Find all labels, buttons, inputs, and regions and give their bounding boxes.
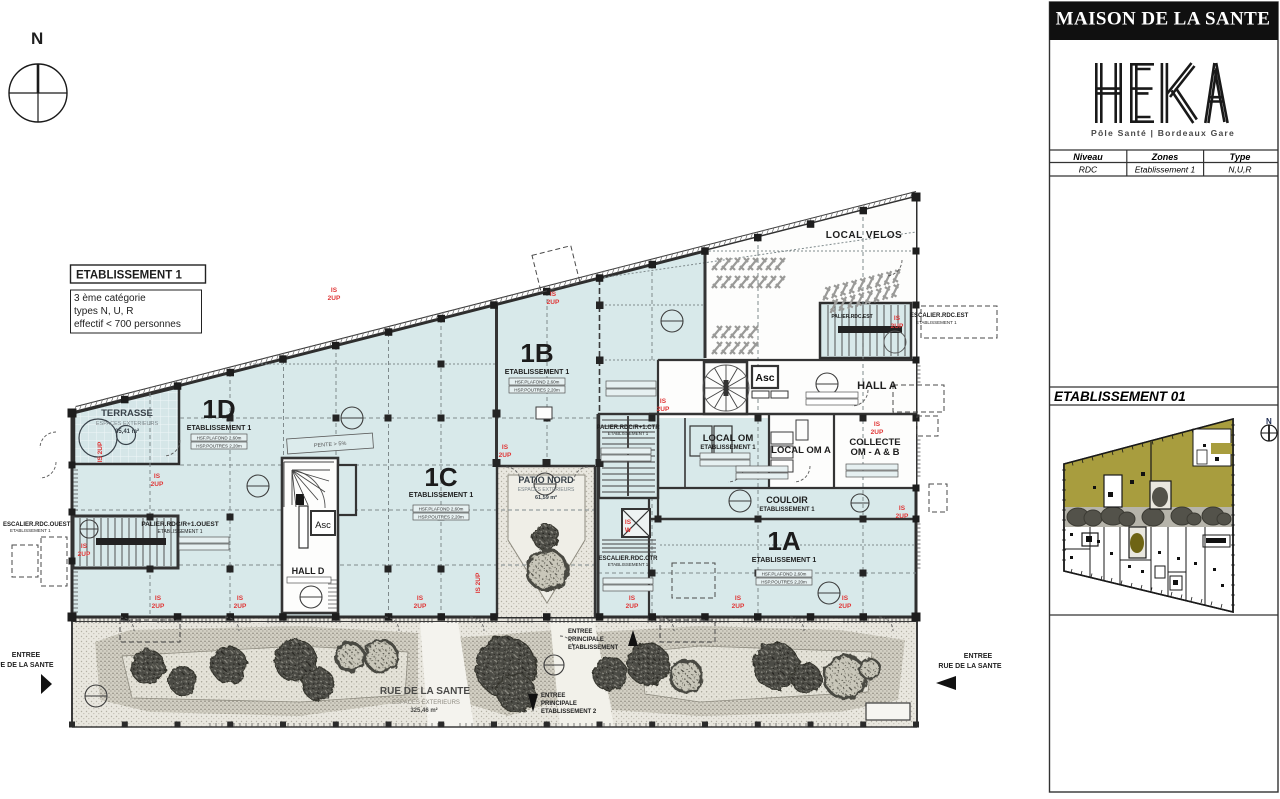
svg-text:ESPACES EXTERIEURS: ESPACES EXTERIEURS	[518, 487, 575, 493]
svg-text:OM - A & B: OM - A & B	[851, 447, 900, 458]
svg-text:COULOIR: COULOIR	[766, 495, 808, 505]
svg-text:MAISON DE LA SANTE: MAISON DE LA SANTE	[1056, 9, 1271, 30]
svg-text:Type: Type	[1230, 152, 1251, 162]
svg-text:61,59 m²: 61,59 m²	[535, 494, 557, 501]
svg-text:TERRASSE: TERRASSE	[101, 408, 153, 419]
svg-text:Asc: Asc	[755, 372, 774, 384]
svg-text:RDC: RDC	[1079, 165, 1098, 175]
svg-text:Pôle Santé | Bordeaux Gare: Pôle Santé | Bordeaux Gare	[1091, 128, 1235, 138]
svg-text:ETABLISSEMENT 1: ETABLISSEMENT 1	[10, 528, 51, 533]
svg-text:2UP: 2UP	[328, 295, 341, 302]
svg-text:HSP.POUTRES 2,20m: HSP.POUTRES 2,20m	[761, 580, 807, 585]
svg-text:types N, U, R: types N, U, R	[74, 306, 133, 317]
svg-text:IS: IS	[735, 595, 742, 602]
svg-text:IS 2UP: IS 2UP	[475, 572, 482, 593]
svg-text:2UP: 2UP	[626, 603, 639, 610]
svg-text:Asc: Asc	[315, 520, 331, 531]
svg-text:HALL A: HALL A	[857, 380, 897, 392]
svg-text:2UP: 2UP	[151, 481, 164, 488]
svg-text:2UP: 2UP	[547, 299, 560, 306]
svg-text:2UP: 2UP	[839, 603, 852, 610]
svg-text:1A: 1A	[767, 526, 800, 556]
svg-text:ETABLISSEMENT 1: ETABLISSEMENT 1	[76, 270, 182, 282]
svg-text:RUE DE LA SANTE: RUE DE LA SANTE	[938, 663, 1001, 670]
svg-text:IS: IS	[237, 595, 244, 602]
svg-text:IS: IS	[81, 543, 88, 550]
svg-text:ETABLISSEMENT 1: ETABLISSEMENT 1	[916, 320, 957, 325]
svg-text:RUE DE LA SANTE: RUE DE LA SANTE	[0, 662, 54, 669]
svg-text:HSP.POUTRES 2,20m: HSP.POUTRES 2,20m	[514, 388, 560, 393]
svg-text:IS: IS	[331, 287, 338, 294]
svg-text:IS: IS	[874, 421, 881, 428]
svg-text:N: N	[31, 29, 43, 48]
svg-text:PATIO NORD: PATIO NORD	[518, 475, 574, 485]
svg-text:ETABLISSEMENT 1: ETABLISSEMENT 1	[157, 529, 202, 535]
svg-text:ETABLISSEMENT 1: ETABLISSEMENT 1	[759, 507, 815, 513]
svg-text:ESCALIER.RDC.EST: ESCALIER.RDC.EST	[910, 313, 969, 319]
svg-text:HSF.PLAFOND 2,60m: HSF.PLAFOND 2,60m	[762, 572, 807, 577]
svg-text:ETABLISSEMENT 1: ETABLISSEMENT 1	[187, 425, 252, 432]
svg-text:Niveau: Niveau	[1073, 152, 1103, 162]
svg-text:HSF.PLAFOND 2,60m: HSF.PLAFOND 2,60m	[515, 380, 560, 385]
svg-text:2UP: 2UP	[732, 603, 745, 610]
svg-text:ENTREE: ENTREE	[964, 653, 993, 660]
svg-text:35,41 m²: 35,41 m²	[115, 428, 139, 435]
svg-text:LOCAL OM: LOCAL OM	[703, 433, 754, 444]
svg-text:2UP: 2UP	[78, 551, 91, 558]
svg-text:LOCAL VELOS: LOCAL VELOS	[826, 230, 902, 241]
svg-text:IS: IS	[660, 398, 667, 405]
svg-text:W: W	[625, 527, 632, 534]
svg-text:IS: IS	[154, 473, 161, 480]
svg-text:ETABLISSEMENT 1: ETABLISSEMENT 1	[409, 492, 474, 499]
svg-text:HSP.POUTRES 2,20m: HSP.POUTRES 2,20m	[196, 444, 242, 449]
svg-text:effectif < 700 personnes: effectif < 700 personnes	[74, 319, 181, 330]
svg-text:IS 2UP: IS 2UP	[97, 441, 104, 462]
svg-text:Etablissement 1: Etablissement 1	[1135, 165, 1196, 175]
svg-text:2UP: 2UP	[414, 603, 427, 610]
svg-text:IS: IS	[842, 595, 849, 602]
svg-text:ETABLISSEMENT 1: ETABLISSEMENT 1	[505, 369, 570, 376]
svg-text:IS: IS	[155, 595, 162, 602]
svg-text:PRINCIPALE: PRINCIPALE	[541, 701, 577, 707]
svg-text:2UP: 2UP	[891, 323, 904, 330]
svg-text:2UP: 2UP	[896, 513, 909, 520]
svg-text:PALIER.RDC.EST: PALIER.RDC.EST	[831, 314, 872, 320]
svg-text:IS: IS	[629, 595, 636, 602]
svg-text:ETABLISSEMENT: ETABLISSEMENT	[568, 645, 619, 651]
svg-text:ENTREE: ENTREE	[12, 652, 41, 659]
svg-text:3 ème catégorie: 3 ème catégorie	[74, 293, 146, 304]
svg-text:ETABLISSEMENT 1: ETABLISSEMENT 1	[608, 431, 649, 436]
svg-text:IS: IS	[417, 595, 424, 602]
svg-text:PALIER.RDC/R+1.OUEST: PALIER.RDC/R+1.OUEST	[141, 521, 218, 528]
svg-text:ETABLISSEMENT 1: ETABLISSEMENT 1	[752, 557, 817, 564]
svg-text:ESPACES EXTERIEURS: ESPACES EXTERIEURS	[392, 700, 460, 706]
svg-text:PRINCIPALE: PRINCIPALE	[568, 637, 604, 643]
svg-text:ETABLISSEMENT 1: ETABLISSEMENT 1	[700, 445, 756, 451]
svg-text:IS: IS	[894, 315, 901, 322]
svg-text:1C: 1C	[424, 462, 457, 492]
svg-text:RUE DE LA SANTE: RUE DE LA SANTE	[380, 686, 471, 697]
svg-text:325,46 m²: 325,46 m²	[410, 707, 437, 714]
svg-text:2UP: 2UP	[234, 603, 247, 610]
svg-text:2UP: 2UP	[871, 429, 884, 436]
svg-text:1B: 1B	[520, 338, 553, 368]
svg-text:ENTREE: ENTREE	[541, 693, 565, 699]
svg-text:HSF.PLAFOND 2,60m: HSF.PLAFOND 2,60m	[197, 436, 242, 441]
svg-text:N,U,R: N,U,R	[1228, 165, 1251, 175]
svg-text:HALL D: HALL D	[292, 566, 325, 576]
svg-text:2UP: 2UP	[657, 406, 670, 413]
svg-text:HSP.POUTRES 2,20m: HSP.POUTRES 2,20m	[418, 515, 464, 520]
svg-text:ESPACES EXTERIEURS: ESPACES EXTERIEURS	[96, 421, 159, 427]
svg-text:ETABLISSEMENT 1: ETABLISSEMENT 1	[608, 562, 649, 567]
svg-text:IS: IS	[502, 444, 509, 451]
svg-text:HSF.PLAFOND 2,60m: HSF.PLAFOND 2,60m	[419, 507, 464, 512]
svg-text:IS: IS	[625, 519, 632, 526]
svg-text:2UP: 2UP	[152, 603, 165, 610]
svg-text:ETABLISSEMENT 2: ETABLISSEMENT 2	[541, 709, 597, 715]
svg-text:LOCAL OM A: LOCAL OM A	[771, 445, 831, 456]
svg-text:2UP: 2UP	[499, 452, 512, 459]
svg-text:ETABLISSEMENT 01: ETABLISSEMENT 01	[1054, 389, 1186, 404]
svg-text:1D: 1D	[202, 394, 235, 424]
svg-text:ENTREE: ENTREE	[568, 629, 592, 635]
svg-text:IS: IS	[899, 505, 906, 512]
svg-text:IS: IS	[550, 291, 557, 298]
svg-text:Zones: Zones	[1151, 152, 1179, 162]
